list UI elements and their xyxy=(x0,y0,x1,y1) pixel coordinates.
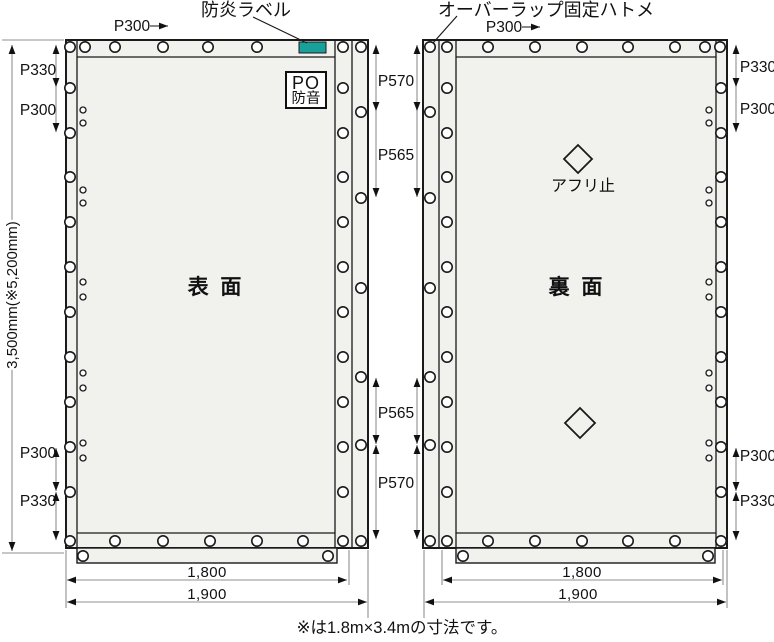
eyelet xyxy=(338,352,348,362)
arrowhead xyxy=(414,188,421,197)
arrowhead xyxy=(414,445,421,454)
eyelet xyxy=(298,536,308,546)
eyelet xyxy=(715,42,725,52)
eyelet xyxy=(110,42,120,52)
eyelet xyxy=(716,397,726,407)
small-eyelet xyxy=(706,294,712,300)
arrowhead xyxy=(414,45,421,54)
eyelet xyxy=(338,83,348,93)
eyelet xyxy=(442,442,452,452)
arrowhead xyxy=(733,78,740,87)
eyelet xyxy=(442,262,452,272)
eyelet xyxy=(65,536,75,546)
eyelet xyxy=(65,442,75,452)
arrowhead xyxy=(53,482,60,491)
dim-mid-top-p570: P570 xyxy=(378,73,414,91)
eyelet xyxy=(65,83,75,93)
eyelet xyxy=(338,262,348,272)
eyelet xyxy=(442,83,452,93)
small-eyelet xyxy=(80,385,86,391)
eyelet xyxy=(483,42,493,52)
eyelet xyxy=(338,442,348,452)
dim-height-label: 3,500mm(※5,200mm) xyxy=(0,220,24,370)
eyelet xyxy=(78,551,88,561)
arrowhead xyxy=(733,45,740,54)
small-eyelet xyxy=(706,187,712,193)
eyelet xyxy=(323,551,333,561)
arrowhead xyxy=(733,492,740,501)
small-eyelet xyxy=(80,107,86,113)
eyelet xyxy=(110,536,120,546)
eyelet xyxy=(338,536,348,546)
eyelet xyxy=(425,42,435,52)
dim-mid-top-p565: P565 xyxy=(378,147,414,165)
small-eyelet xyxy=(80,279,86,285)
arrowhead xyxy=(53,123,60,132)
eyelet xyxy=(425,536,435,546)
arrowhead xyxy=(9,45,16,54)
arrowhead xyxy=(713,577,722,584)
eyelet xyxy=(338,172,348,182)
eyelet xyxy=(716,487,726,497)
eyelet xyxy=(458,551,468,561)
front-top-pitch-label: P300 xyxy=(114,18,150,36)
dim-left-bottom-p330: P330 xyxy=(20,493,56,511)
eyelet xyxy=(65,307,75,317)
eyelet xyxy=(356,42,366,52)
eyelet xyxy=(338,307,348,317)
eyelet xyxy=(356,440,366,450)
eyelet xyxy=(703,551,713,561)
eyelet xyxy=(716,128,726,138)
eyelet xyxy=(442,128,452,138)
arrowhead xyxy=(414,435,421,444)
arrowhead xyxy=(425,599,434,606)
eyelet xyxy=(442,352,452,362)
small-eyelet xyxy=(706,200,712,206)
small-eyelet xyxy=(706,440,712,446)
eyelet xyxy=(716,172,726,182)
arrowhead xyxy=(414,102,421,111)
eyelet xyxy=(338,128,348,138)
eyelet xyxy=(442,397,452,407)
eyelet xyxy=(716,442,726,452)
eyelet xyxy=(716,307,726,317)
arrowhead xyxy=(717,599,726,606)
eyelet xyxy=(65,352,75,362)
eyelet xyxy=(700,42,710,52)
small-eyelet xyxy=(706,385,712,391)
arrowhead xyxy=(733,482,740,491)
eyelet xyxy=(425,283,435,293)
flap-stopper-label: アフリ止 xyxy=(551,178,615,196)
eyelet xyxy=(65,172,75,182)
arrowhead xyxy=(733,123,740,132)
eyelet xyxy=(442,42,452,52)
small-eyelet xyxy=(706,120,712,126)
arrowhead xyxy=(9,542,16,551)
eyelet xyxy=(442,307,452,317)
back-top-pitch-label: P300 xyxy=(486,19,522,37)
dimension-note: ※は1.8m×3.4mの寸法です。 xyxy=(297,619,508,638)
eyelet xyxy=(80,42,90,52)
dim-right-top-p330: P330 xyxy=(740,59,774,77)
arrowhead xyxy=(373,445,380,454)
arrowhead xyxy=(373,435,380,444)
eyelet xyxy=(158,42,168,52)
dim-back-width-1800: 1,800 xyxy=(562,564,602,581)
dim-right-top-p300: P300 xyxy=(740,101,774,119)
eyelet xyxy=(338,42,348,52)
arrowhead xyxy=(531,24,540,31)
dim-front-width-1900: 1,900 xyxy=(187,586,227,603)
overlap-eyelet-title: オーバーラップ固定ハトメ xyxy=(438,0,654,21)
dim-left-top-p330: P330 xyxy=(20,62,56,80)
arrowhead xyxy=(373,378,380,387)
arrowhead xyxy=(53,45,60,54)
eyelet xyxy=(577,536,587,546)
eyelet xyxy=(623,536,633,546)
dim-right-bottom-p330: P330 xyxy=(740,493,774,511)
eyelet xyxy=(356,372,366,382)
arrowhead xyxy=(373,102,380,111)
small-eyelet xyxy=(80,440,86,446)
bottom-flap xyxy=(77,548,337,563)
eyelet xyxy=(425,372,435,382)
dim-back-width-1900: 1,900 xyxy=(558,586,598,603)
front-panel-title: 表 面 xyxy=(188,276,245,300)
eyelet xyxy=(483,536,493,546)
small-eyelet xyxy=(706,455,712,461)
eyelet xyxy=(65,128,75,138)
small-eyelet xyxy=(80,370,86,376)
small-eyelet xyxy=(80,455,86,461)
arrowhead xyxy=(338,577,347,584)
flame-label-tag xyxy=(299,42,326,53)
arrowhead xyxy=(733,448,740,457)
arrowhead xyxy=(373,45,380,54)
eyelet xyxy=(530,42,540,52)
eyelet xyxy=(205,536,215,546)
eyelet xyxy=(716,262,726,272)
po-mark-line1: PO xyxy=(287,74,325,92)
eyelet xyxy=(716,217,726,227)
eyelet xyxy=(577,42,587,52)
diagram-canvas: 防炎ラベル オーバーラップ固定ハトメ P300 P300 P330 P300 P… xyxy=(0,0,774,642)
arrowhead xyxy=(373,188,380,197)
eyelet xyxy=(670,536,680,546)
eyelet xyxy=(670,42,680,52)
eyelet xyxy=(252,536,262,546)
eyelet xyxy=(442,487,452,497)
arrowhead xyxy=(373,530,380,539)
eyelet xyxy=(530,536,540,546)
eyelet xyxy=(356,193,366,203)
eyelet xyxy=(356,536,366,546)
arrowhead xyxy=(414,378,421,387)
eyelet xyxy=(203,42,213,52)
small-eyelet xyxy=(706,279,712,285)
dim-left-bottom-p300: P300 xyxy=(20,445,56,463)
arrowhead xyxy=(53,531,60,540)
eyelet xyxy=(356,283,366,293)
eyelet xyxy=(65,262,75,272)
small-eyelet xyxy=(80,120,86,126)
flame-label-title: 防炎ラベル xyxy=(201,0,291,21)
bottom-flap xyxy=(456,548,715,563)
eyelet xyxy=(425,107,435,117)
eyelet xyxy=(716,83,726,93)
po-soundproof-mark: PO 防音 xyxy=(285,71,327,109)
eyelet xyxy=(716,352,726,362)
diagram-svg xyxy=(0,0,774,642)
eyelet xyxy=(158,536,168,546)
eyelet xyxy=(252,42,262,52)
small-eyelet xyxy=(80,187,86,193)
eyelet xyxy=(442,172,452,182)
eyelet xyxy=(442,217,452,227)
dim-front-width-1800: 1,800 xyxy=(187,564,227,581)
dim-mid-bottom-p565: P565 xyxy=(378,405,414,423)
po-mark-line2: 防音 xyxy=(287,92,325,107)
small-eyelet xyxy=(706,370,712,376)
dim-mid-bottom-p570: P570 xyxy=(378,475,414,493)
eyelet xyxy=(338,487,348,497)
eyelet xyxy=(65,217,75,227)
small-eyelet xyxy=(80,200,86,206)
arrowhead xyxy=(443,577,452,584)
small-eyelet xyxy=(706,107,712,113)
eyelet xyxy=(338,217,348,227)
arrowhead xyxy=(733,531,740,540)
dim-left-top-p300: P300 xyxy=(20,102,56,120)
eyelet xyxy=(623,42,633,52)
eyelet xyxy=(65,397,75,407)
arrowhead xyxy=(159,23,168,30)
arrowhead xyxy=(67,599,76,606)
arrowhead xyxy=(67,577,76,584)
eyelet xyxy=(356,107,366,117)
small-eyelet xyxy=(80,294,86,300)
eyelet xyxy=(338,397,348,407)
eyelet xyxy=(65,42,75,52)
back-panel-title: 裏 面 xyxy=(549,276,606,300)
eyelet xyxy=(425,440,435,450)
arrowhead xyxy=(414,530,421,539)
arrowhead xyxy=(358,599,367,606)
dim-right-bottom-p300: P300 xyxy=(740,448,774,466)
eyelet xyxy=(442,536,452,546)
eyelet xyxy=(65,487,75,497)
eyelet xyxy=(425,193,435,203)
eyelet xyxy=(716,536,726,546)
